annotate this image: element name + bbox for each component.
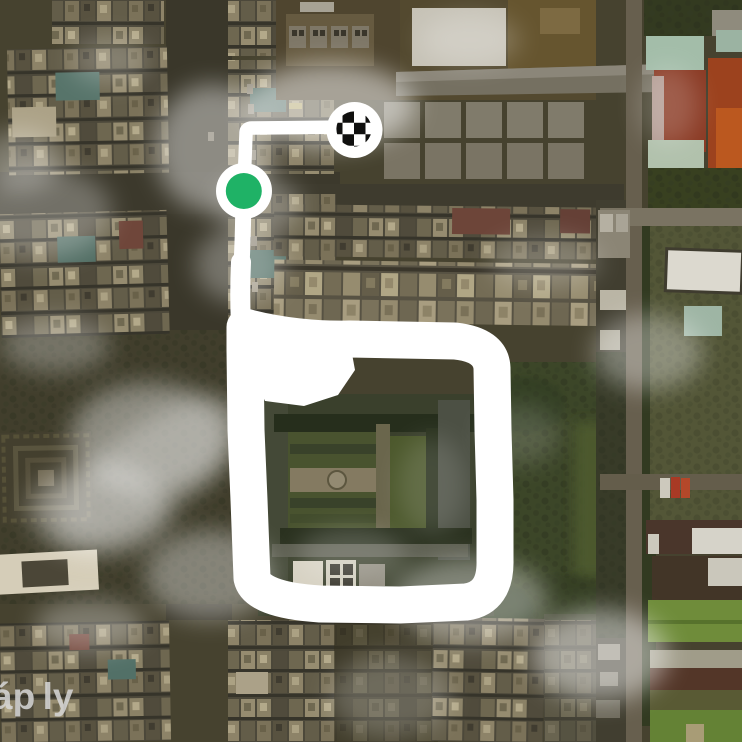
svg-text:áp ly: áp ly — [0, 676, 74, 717]
